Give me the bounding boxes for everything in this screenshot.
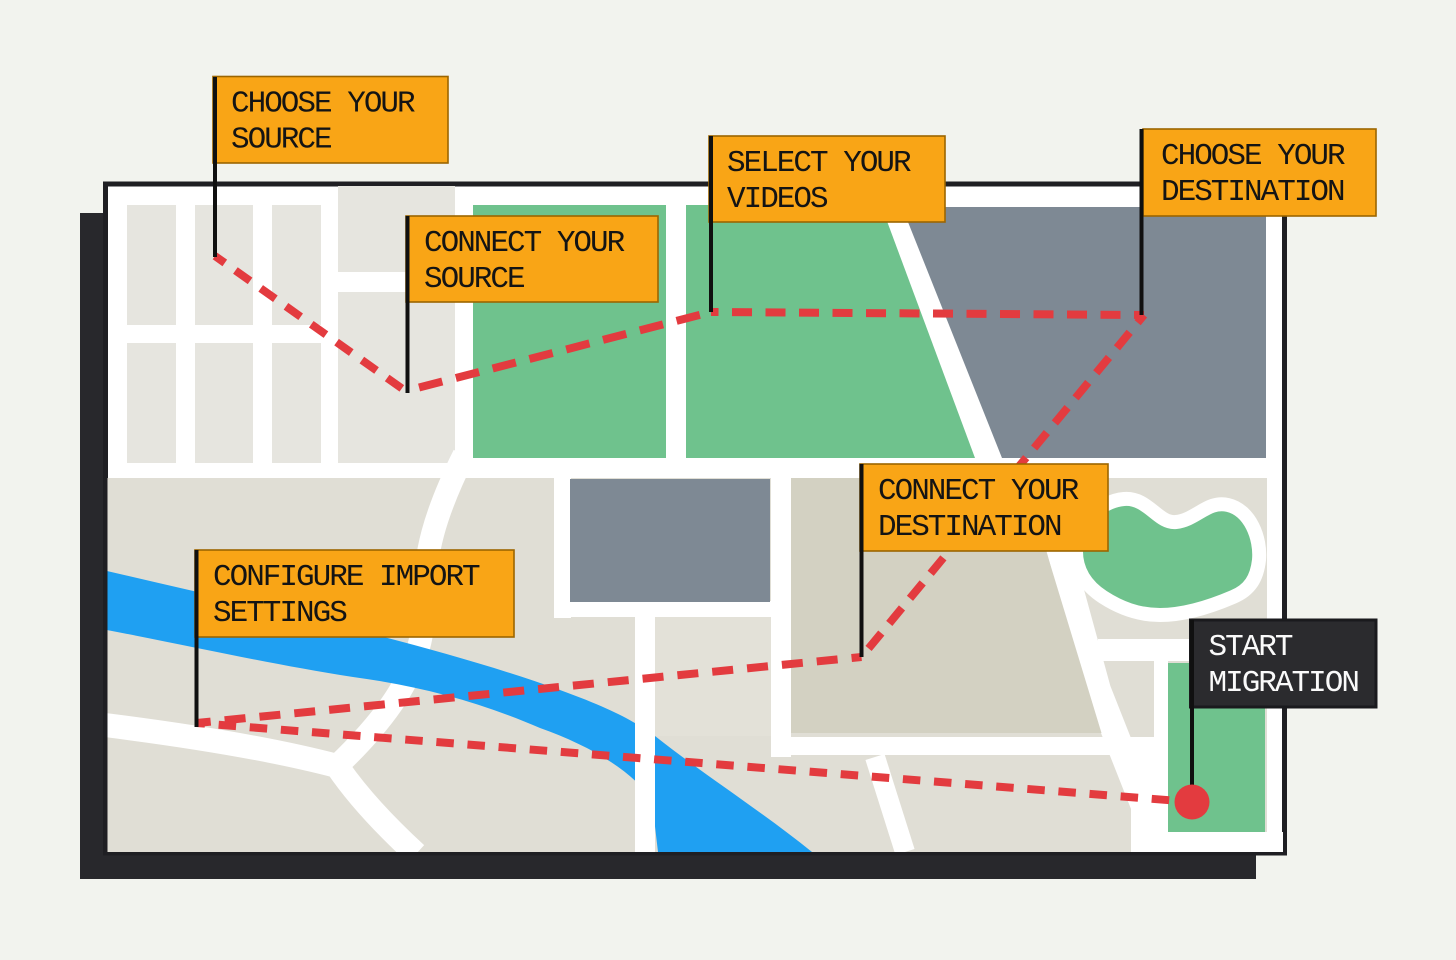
svg-text:MIGRATION: MIGRATION — [1209, 666, 1359, 701]
svg-text:DESTINATION: DESTINATION — [878, 510, 1061, 545]
svg-text:VIDEOS: VIDEOS — [727, 182, 828, 217]
svg-text:CONFIGURE IMPORT: CONFIGURE IMPORT — [213, 560, 480, 595]
svg-text:CHOOSE YOUR: CHOOSE YOUR — [1161, 139, 1345, 174]
svg-text:SOURCE: SOURCE — [424, 262, 524, 297]
svg-text:SOURCE: SOURCE — [231, 123, 331, 158]
svg-text:SETTINGS: SETTINGS — [213, 596, 347, 631]
svg-text:DESTINATION: DESTINATION — [1161, 175, 1344, 210]
svg-text:START: START — [1209, 630, 1293, 665]
svg-text:SELECT YOUR: SELECT YOUR — [727, 146, 911, 181]
svg-text:CONNECT YOUR: CONNECT YOUR — [424, 226, 625, 261]
svg-text:CONNECT YOUR: CONNECT YOUR — [878, 474, 1079, 509]
svg-text:CHOOSE YOUR: CHOOSE YOUR — [231, 87, 415, 122]
